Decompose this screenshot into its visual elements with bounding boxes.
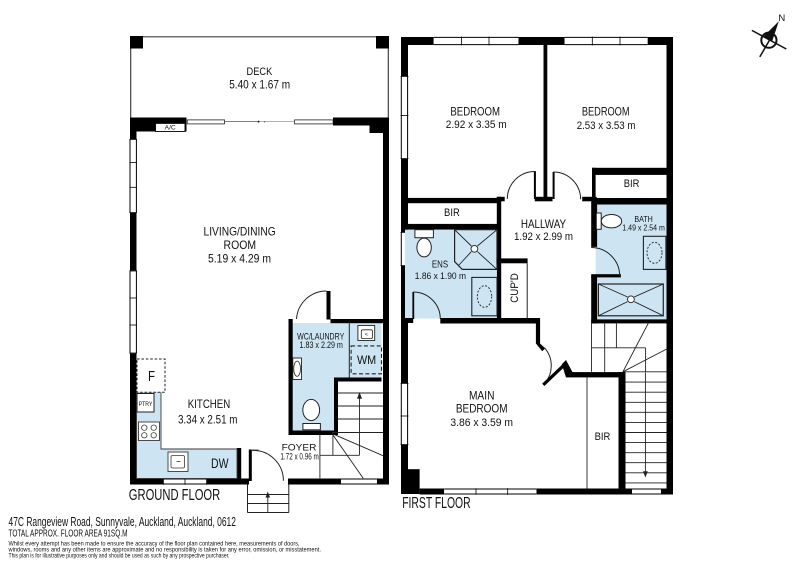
svg-text:BIR: BIR: [444, 207, 460, 219]
svg-text:BEDROOM: BEDROOM: [456, 404, 508, 416]
svg-text:47C Rangeview Road, Sunnyvale,: 47C Rangeview Road, Sunnyvale, Auckland,…: [9, 514, 236, 529]
svg-text:GROUND FLOOR: GROUND FLOOR: [129, 487, 220, 504]
svg-text:3.86 x 3.59 m: 3.86 x 3.59 m: [450, 417, 513, 429]
svg-text:TOTAL APPROX. FLOOR AREA 91SQ.: TOTAL APPROX. FLOOR AREA 91SQ.M: [9, 529, 128, 540]
svg-text:ROOM: ROOM: [224, 238, 257, 252]
svg-text:CUP'D: CUP'D: [509, 273, 521, 303]
svg-text:KITCHEN: KITCHEN: [188, 397, 231, 411]
svg-text:BEDROOM: BEDROOM: [450, 106, 500, 118]
svg-text:BIR: BIR: [624, 178, 640, 190]
svg-text:1.49 x 2.54 m: 1.49 x 2.54 m: [622, 224, 665, 233]
svg-text:<: <: [365, 332, 368, 338]
svg-text:BIR: BIR: [595, 431, 611, 443]
svg-text:MAIN: MAIN: [469, 391, 495, 403]
svg-text:N: N: [778, 13, 785, 24]
svg-text:BEDROOM: BEDROOM: [582, 107, 630, 119]
svg-text:1.92 x 2.99 m: 1.92 x 2.99 m: [514, 231, 573, 243]
svg-text:5.19 x 4.29 m: 5.19 x 4.29 m: [208, 253, 271, 266]
svg-text:1.83 x 2.29 m: 1.83 x 2.29 m: [300, 340, 343, 350]
svg-text:F: F: [148, 368, 155, 385]
svg-text:PTRY: PTRY: [139, 401, 153, 408]
svg-text:FIRST FLOOR: FIRST FLOOR: [402, 495, 470, 512]
svg-text:ENS: ENS: [432, 259, 449, 270]
svg-text:DECK: DECK: [247, 66, 273, 78]
svg-text:5.40 x 1.67 m: 5.40 x 1.67 m: [229, 78, 290, 91]
svg-text:WM: WM: [357, 354, 376, 367]
svg-text:LIVING/DINING: LIVING/DINING: [204, 225, 276, 239]
svg-text:DW: DW: [211, 455, 229, 471]
svg-text:1.72 x 0.96 m: 1.72 x 0.96 m: [280, 451, 318, 461]
svg-text:3.34 x 2.51 m: 3.34 x 2.51 m: [178, 413, 238, 426]
svg-text:HALLWAY: HALLWAY: [521, 217, 566, 231]
svg-text:2.92 x 3.35 m: 2.92 x 3.35 m: [446, 119, 507, 131]
svg-text:This plan is for illustrative: This plan is for illustrative purposes o…: [9, 553, 230, 560]
svg-text:A/C: A/C: [165, 125, 177, 132]
svg-text:1.86 x 1.90 m: 1.86 x 1.90 m: [415, 270, 466, 281]
svg-text:2.53 x 3.53 m: 2.53 x 3.53 m: [577, 120, 636, 132]
